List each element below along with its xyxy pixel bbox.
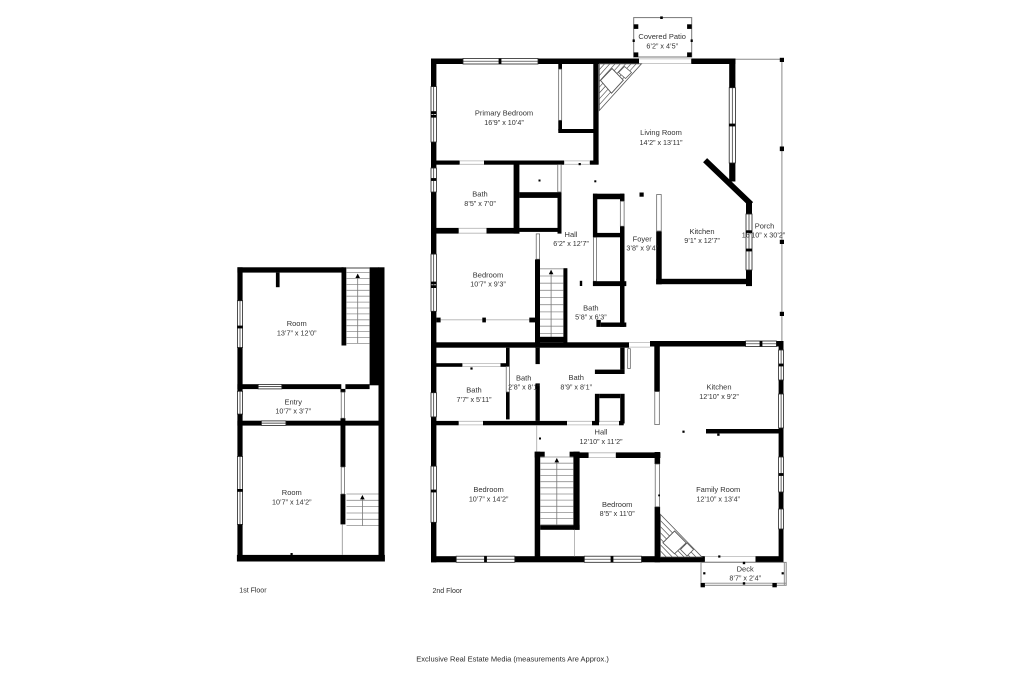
svg-text:5’8” x 6’3”: 5’8” x 6’3” <box>575 312 607 321</box>
svg-text:Porch: Porch <box>755 222 775 231</box>
svg-text:3’8” x 9’4”: 3’8” x 9’4” <box>626 244 658 253</box>
svg-text:Bath: Bath <box>583 304 598 313</box>
svg-text:12’10” x 11’2”: 12’10” x 11’2” <box>579 437 623 446</box>
svg-text:Family Room: Family Room <box>696 485 740 494</box>
svg-text:14’2” x 13’11”: 14’2” x 13’11” <box>639 138 683 147</box>
svg-text:Room: Room <box>282 488 302 497</box>
svg-text:10’7” x 14’2”: 10’7” x 14’2” <box>272 498 312 507</box>
svg-text:Entry: Entry <box>284 398 302 407</box>
svg-text:10’7” x 9’3”: 10’7” x 9’3” <box>470 280 506 289</box>
svg-text:16’9” x 10’4”: 16’9” x 10’4” <box>484 118 524 127</box>
svg-text:10’7” x 14’2”: 10’7” x 14’2” <box>469 495 509 504</box>
svg-text:2’8” x 8’1”: 2’8” x 8’1” <box>508 382 540 391</box>
svg-text:Bath: Bath <box>568 373 583 382</box>
svg-text:Bedroom: Bedroom <box>473 485 503 494</box>
svg-text:Bath: Bath <box>516 373 531 382</box>
svg-text:8’9” x 8’1”: 8’9” x 8’1” <box>560 382 592 391</box>
svg-text:1st Floor: 1st Floor <box>239 587 267 594</box>
svg-text:12’10” x 9’2”: 12’10” x 9’2” <box>699 392 739 401</box>
svg-text:8’7” x 2’4”: 8’7” x 2’4” <box>729 573 761 582</box>
svg-text:Covered Patio: Covered Patio <box>638 32 686 41</box>
svg-text:Bedroom: Bedroom <box>473 270 503 279</box>
svg-text:2nd Floor: 2nd Floor <box>433 588 463 595</box>
svg-text:6’2” x 4’5”: 6’2” x 4’5” <box>646 42 678 51</box>
svg-text:Hall: Hall <box>595 428 608 437</box>
svg-text:Primary Bedroom: Primary Bedroom <box>475 109 533 118</box>
svg-text:Room: Room <box>287 319 307 328</box>
svg-text:Bedroom: Bedroom <box>602 500 632 509</box>
svg-text:10’7” x 3’7”: 10’7” x 3’7” <box>275 407 311 416</box>
svg-text:7’7” x 5’11”: 7’7” x 5’11” <box>456 395 492 404</box>
svg-text:16’10” x 30’2”: 16’10” x 30’2” <box>742 231 786 240</box>
svg-text:Exclusive Real Estate Media (m: Exclusive Real Estate Media (measurement… <box>416 654 609 663</box>
svg-text:Kitchen: Kitchen <box>689 227 714 236</box>
svg-text:8’5” x 11’0”: 8’5” x 11’0” <box>600 509 636 518</box>
svg-text:Living Room: Living Room <box>640 128 682 137</box>
svg-text:12’10” x 13’4”: 12’10” x 13’4” <box>696 495 740 504</box>
svg-text:6’2” x 12’7”: 6’2” x 12’7” <box>553 239 589 248</box>
svg-text:Kitchen: Kitchen <box>706 383 731 392</box>
svg-text:9’1” x 12’7”: 9’1” x 12’7” <box>684 236 720 245</box>
svg-text:Deck: Deck <box>737 564 754 573</box>
svg-text:Bath: Bath <box>472 190 487 199</box>
svg-text:Foyer: Foyer <box>633 234 653 243</box>
svg-text:8’5” x 7’0”: 8’5” x 7’0” <box>464 199 496 208</box>
svg-text:13’7” x 12’0”: 13’7” x 12’0” <box>277 329 317 338</box>
svg-text:Bath: Bath <box>466 386 481 395</box>
svg-text:Hall: Hall <box>565 230 578 239</box>
